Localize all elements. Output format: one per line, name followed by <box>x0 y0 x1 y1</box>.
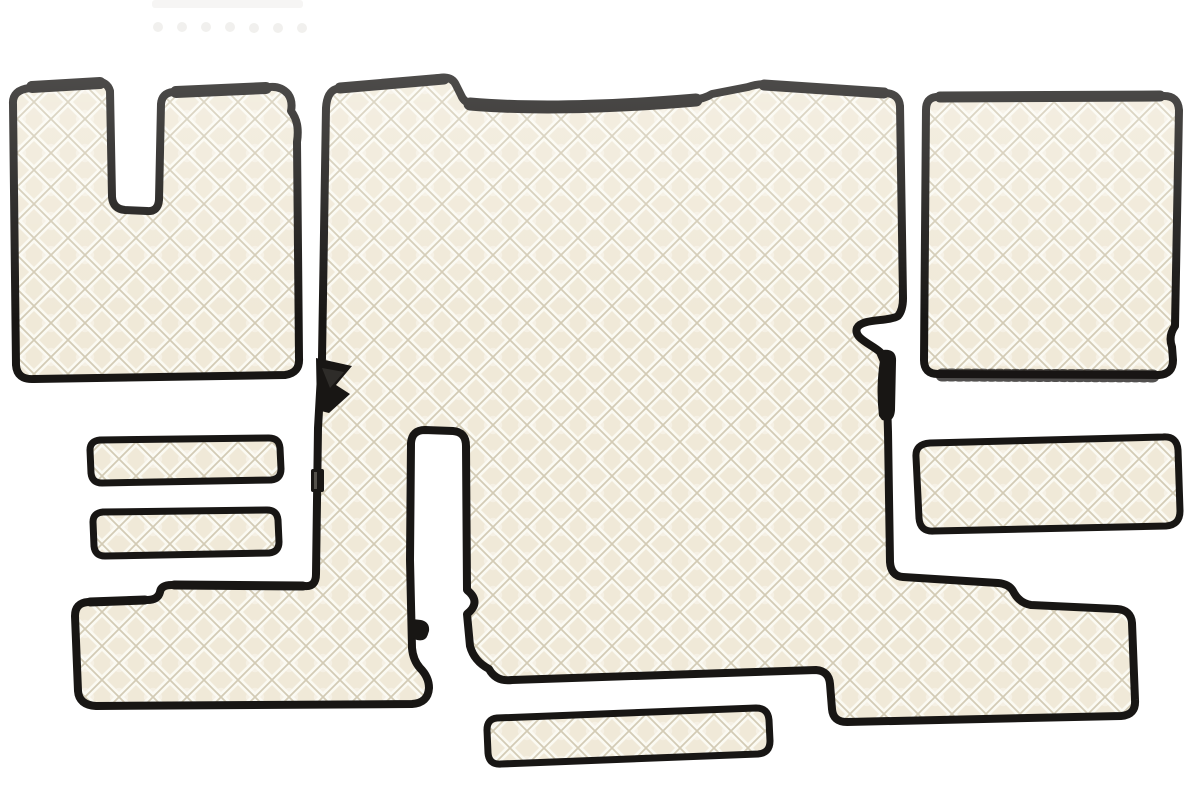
right-footwell-frayed-trim <box>942 375 1156 376</box>
snap-dot <box>201 22 211 32</box>
right-waist-tab <box>878 350 897 421</box>
snap-dot <box>297 23 307 33</box>
snap-dot <box>177 22 187 32</box>
snap-dot <box>225 22 235 32</box>
snap-dot <box>273 23 283 33</box>
floor-mat-set-photo <box>0 0 1200 800</box>
left-sill-strip-upper <box>90 438 281 483</box>
bottom-step-strip <box>487 708 770 764</box>
snap-dot <box>249 23 259 33</box>
snap-dot <box>153 22 163 32</box>
label-tag <box>311 469 324 492</box>
right-cover-strip <box>916 437 1180 531</box>
left-sill-strip-lower <box>93 510 279 556</box>
center-dip-trim <box>470 100 696 107</box>
cropped-piece-body <box>152 0 303 8</box>
right-footwell-top-trim <box>940 96 1160 97</box>
right-footwell-mat <box>924 96 1179 375</box>
product-photo-stage <box>0 0 1200 800</box>
